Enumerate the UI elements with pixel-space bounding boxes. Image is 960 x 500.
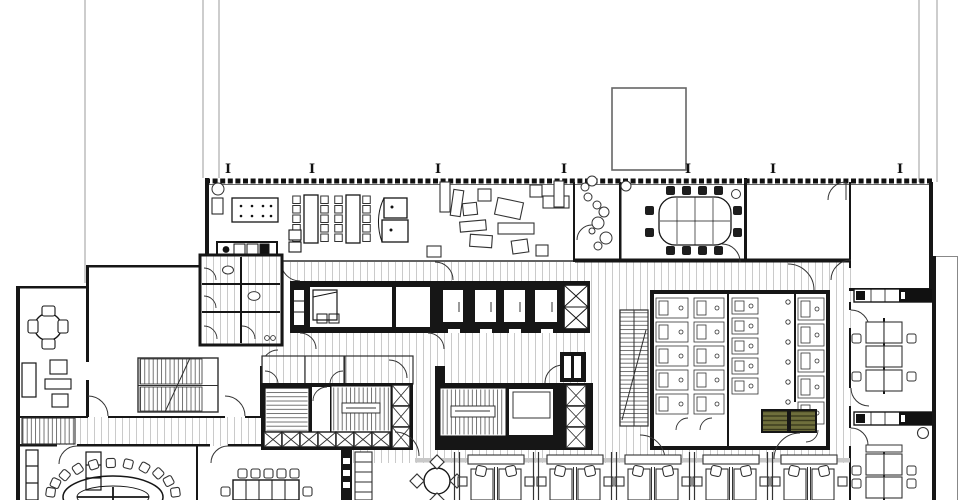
chair	[363, 215, 371, 223]
shelf	[468, 455, 524, 464]
ventilation-shaft	[566, 385, 586, 448]
toilet-core	[650, 290, 830, 450]
plant-icon	[594, 242, 602, 250]
chair	[123, 459, 134, 470]
plant-icon	[918, 428, 929, 439]
chair	[682, 186, 691, 195]
column-marker-icon: I	[309, 162, 315, 177]
plant-icon	[212, 183, 224, 195]
chair	[321, 206, 329, 214]
column-marker-icon: I	[770, 162, 776, 177]
chair	[698, 246, 707, 255]
core-lower-left-block	[261, 356, 413, 450]
desk	[884, 370, 902, 391]
round-table	[424, 468, 450, 494]
desk	[884, 477, 902, 498]
lounge-seat	[498, 223, 534, 234]
desk	[884, 322, 902, 343]
shelf	[547, 455, 603, 464]
chair	[303, 487, 312, 496]
chair	[221, 487, 230, 496]
staircase-core-left	[332, 387, 390, 431]
column-marker-icon: I	[435, 162, 441, 177]
floor-plan-drawing: IIIIIII	[0, 0, 960, 500]
chair	[714, 246, 723, 255]
lounge-seat	[536, 245, 548, 256]
lounge-seat	[554, 181, 564, 207]
chair	[907, 372, 916, 381]
column-marker-icon: I	[561, 162, 567, 177]
ventilation-shaft	[392, 385, 410, 448]
chair	[293, 206, 301, 214]
wc-block	[200, 255, 282, 345]
chair	[290, 469, 299, 478]
shower-tray	[762, 410, 788, 432]
column-marker-icon: I	[897, 162, 903, 177]
chair	[335, 234, 343, 242]
chair	[645, 228, 654, 237]
chair	[321, 215, 329, 223]
chair	[277, 469, 286, 478]
chair	[666, 186, 675, 195]
chair	[321, 234, 329, 242]
plant-icon	[732, 190, 741, 199]
showers	[762, 410, 816, 432]
shelf	[781, 455, 837, 464]
staircase-main	[138, 358, 218, 412]
chair	[170, 487, 180, 497]
chair	[363, 225, 371, 233]
sideboard-top-right	[854, 289, 932, 302]
lounge-seat	[462, 202, 477, 215]
roof-skylight-outline	[612, 88, 686, 170]
chair	[293, 215, 301, 223]
chair	[852, 372, 861, 381]
chair	[645, 206, 654, 215]
chair	[852, 479, 861, 488]
sink-icon	[786, 360, 790, 364]
chair	[852, 466, 861, 475]
desk	[866, 370, 884, 391]
chair	[293, 196, 301, 204]
lounge-seat	[470, 234, 493, 248]
chair	[733, 206, 742, 215]
chair	[88, 459, 99, 470]
long-table	[346, 195, 360, 243]
chair	[335, 196, 343, 204]
chair	[106, 458, 115, 467]
staircase-core-center	[441, 389, 505, 435]
column-marker-icon: I	[225, 162, 231, 177]
sink-icon	[786, 300, 790, 304]
chair	[363, 206, 371, 214]
lounge-seat	[478, 189, 491, 201]
shelf	[625, 455, 681, 464]
ventilation-band	[264, 432, 390, 447]
lounge-seat	[440, 182, 450, 212]
chair	[662, 465, 674, 477]
chair	[740, 465, 752, 477]
sideboard-right-wing	[854, 412, 932, 425]
chair	[321, 196, 329, 204]
desk	[884, 346, 902, 367]
sink-icon	[786, 380, 790, 384]
desk	[866, 322, 884, 343]
chair	[584, 465, 596, 477]
chair	[907, 466, 916, 475]
chair	[335, 215, 343, 223]
chair	[710, 465, 722, 477]
plant-icon	[592, 217, 604, 229]
staircase-narrow	[620, 310, 648, 426]
chair	[335, 225, 343, 233]
plant-icon	[584, 193, 592, 201]
desk	[866, 346, 884, 367]
side-table	[838, 477, 847, 486]
plant-icon	[599, 207, 609, 217]
side-table	[525, 477, 534, 486]
chair	[475, 465, 487, 477]
chair	[363, 234, 371, 242]
chair	[788, 465, 800, 477]
sink-icon	[786, 400, 790, 404]
lounge-seat	[511, 239, 529, 254]
chair	[698, 186, 707, 195]
chair	[238, 469, 247, 478]
lounge-seat	[460, 220, 487, 232]
desk	[866, 477, 884, 498]
chair	[632, 465, 644, 477]
shower-tray	[790, 410, 816, 432]
chair	[363, 196, 371, 204]
lounge-seat	[530, 185, 542, 197]
plant-icon	[587, 176, 597, 186]
stair-small	[22, 418, 75, 444]
chair	[682, 246, 691, 255]
sink-icon	[786, 320, 790, 324]
desk	[884, 454, 902, 475]
chair	[666, 246, 675, 255]
desk	[866, 454, 884, 475]
plant-icon	[593, 201, 601, 209]
plant-icon	[621, 181, 631, 191]
chair	[264, 469, 273, 478]
chair	[907, 334, 916, 343]
plant-icon	[589, 228, 595, 234]
shelf	[703, 455, 759, 464]
shelf	[866, 445, 902, 452]
shelf-ladder	[355, 452, 372, 500]
chair	[335, 206, 343, 214]
chair	[505, 465, 517, 477]
plant-icon	[600, 232, 612, 244]
chair	[714, 186, 723, 195]
column-marker-icon: I	[685, 162, 691, 177]
chair	[818, 465, 830, 477]
sink-icon	[786, 340, 790, 344]
chair	[554, 465, 566, 477]
floor-plan-page: IIIIIII	[0, 0, 960, 500]
chair	[907, 479, 916, 488]
chair	[852, 334, 861, 343]
long-table	[304, 195, 318, 243]
chair	[251, 469, 260, 478]
chair	[733, 228, 742, 237]
chair	[46, 487, 56, 497]
lounge-seat	[427, 246, 441, 257]
chair	[321, 225, 329, 233]
